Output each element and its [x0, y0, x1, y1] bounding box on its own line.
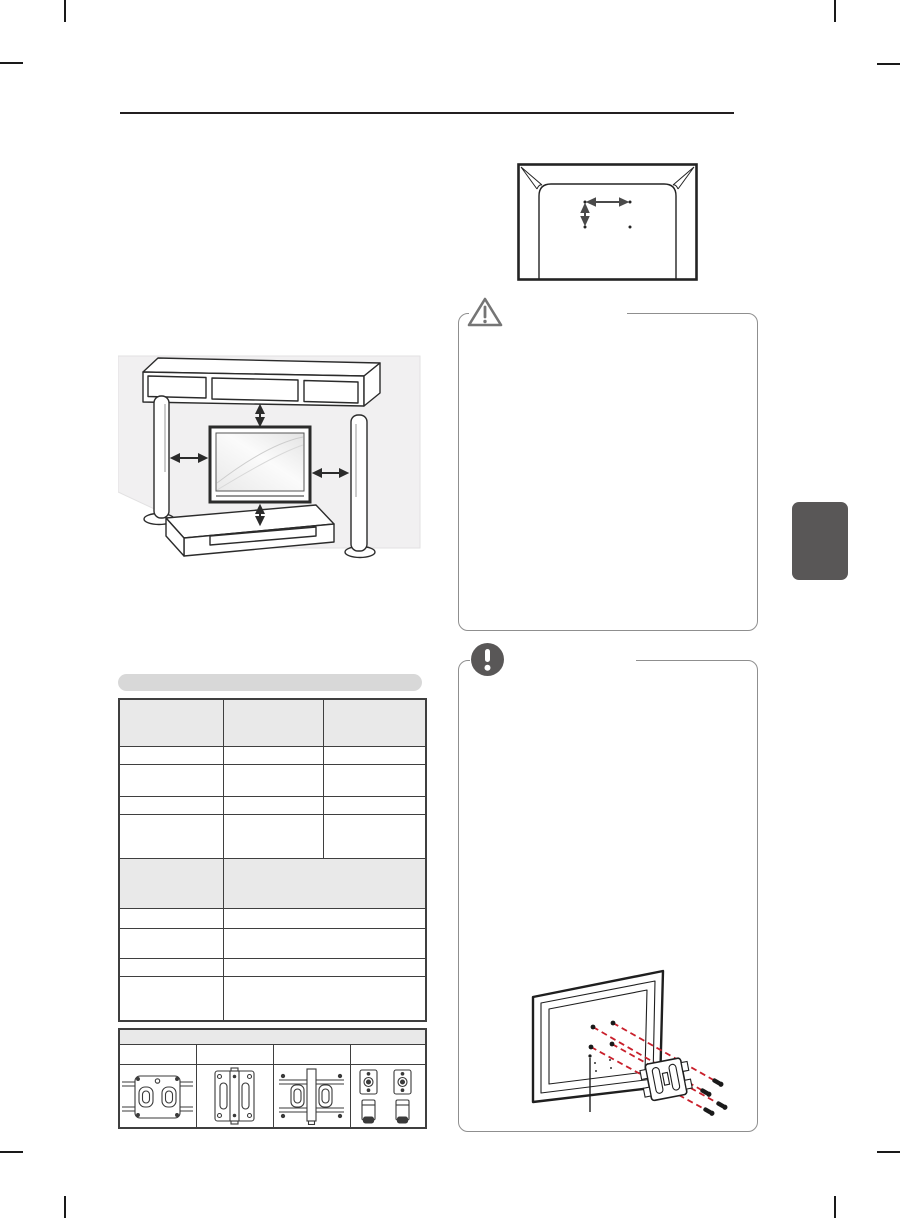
spec-cell [223, 976, 426, 1021]
spec-col-header [119, 699, 223, 746]
crop-mark-bottom-left-v [64, 1196, 66, 1218]
spec-cell [323, 796, 426, 814]
crop-mark-top-right-h [877, 63, 900, 65]
spec-cell [323, 764, 426, 796]
bracket-attach-figure [520, 966, 758, 1126]
spec-cell [119, 928, 223, 958]
bracket-model-cell [350, 1044, 426, 1064]
spec-table [118, 698, 427, 1022]
spec-col-header [223, 699, 323, 746]
crop-mark-top-right-v [834, 0, 836, 22]
spec-cell [223, 814, 323, 858]
crop-mark-bottom-right-h [877, 1151, 900, 1153]
bracket-model-cell [273, 1044, 350, 1064]
bracket-image-column-type [273, 1064, 350, 1128]
bracket-image-rail-type [119, 1064, 196, 1128]
clearance-figure [118, 342, 436, 582]
bracket-table [118, 1028, 427, 1129]
wall-bracket [639, 1057, 693, 1102]
bracket-model-cell [119, 1044, 196, 1064]
crop-mark-bottom-left-h [0, 1151, 23, 1153]
caution-box [458, 313, 758, 631]
spec-cell [323, 746, 426, 764]
spec-cell [223, 746, 323, 764]
caution-triangle-icon [466, 296, 504, 328]
spec-cell [119, 958, 223, 976]
bracket-image-plate-type [196, 1064, 273, 1128]
spec-col-header [119, 858, 223, 908]
bracket-image-spacers [350, 1064, 426, 1128]
crop-mark-top-left-v [64, 0, 66, 22]
spec-cell [223, 764, 323, 796]
crop-mark-bottom-right-v [834, 1196, 836, 1218]
spec-cell [223, 908, 426, 928]
spec-section-pill [118, 674, 422, 691]
spec-cell [119, 764, 223, 796]
note-exclamation-icon [470, 642, 505, 677]
section-tab [792, 502, 848, 580]
spec-cell [323, 814, 426, 858]
bracket-model-cell [196, 1044, 273, 1064]
spec-cell [119, 814, 223, 858]
tv [210, 427, 310, 502]
tv-rear [533, 971, 663, 1102]
crop-mark-top-left-h [0, 62, 23, 64]
manual-page [0, 0, 900, 1218]
spec-col-header [323, 699, 426, 746]
spec-cell [119, 746, 223, 764]
spec-col-header [223, 858, 426, 908]
spec-cell [223, 958, 426, 976]
vesa-pattern-figure [517, 163, 698, 281]
spec-cell [119, 796, 223, 814]
wall-shelf [143, 358, 380, 406]
spec-cell [119, 976, 223, 1021]
spec-cell [119, 908, 223, 928]
screws [699, 1077, 728, 1117]
spec-cell [223, 796, 323, 814]
spec-cell [223, 928, 426, 958]
bracket-table-title [119, 1029, 426, 1044]
page-header-rule [120, 112, 734, 114]
